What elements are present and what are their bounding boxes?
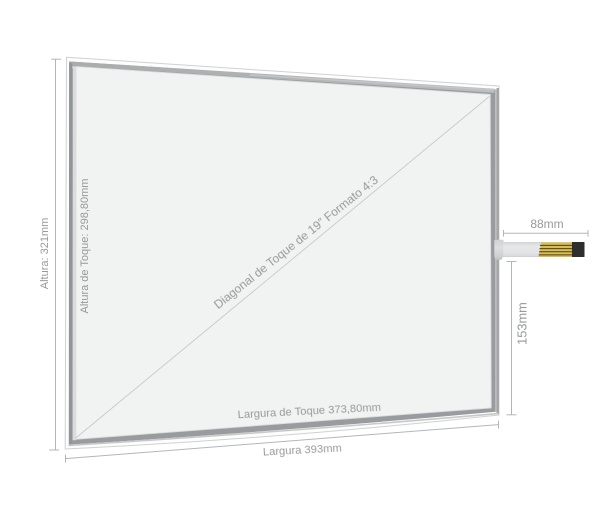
svg-text:153mm: 153mm xyxy=(515,302,530,345)
svg-text:Largura 393mm: Largura 393mm xyxy=(263,442,343,458)
svg-text:88mm: 88mm xyxy=(530,217,563,231)
svg-text:Altura de Toque: 298,80mm: Altura de Toque: 298,80mm xyxy=(79,179,91,314)
svg-text:Altura: 321mm: Altura: 321mm xyxy=(39,218,51,290)
